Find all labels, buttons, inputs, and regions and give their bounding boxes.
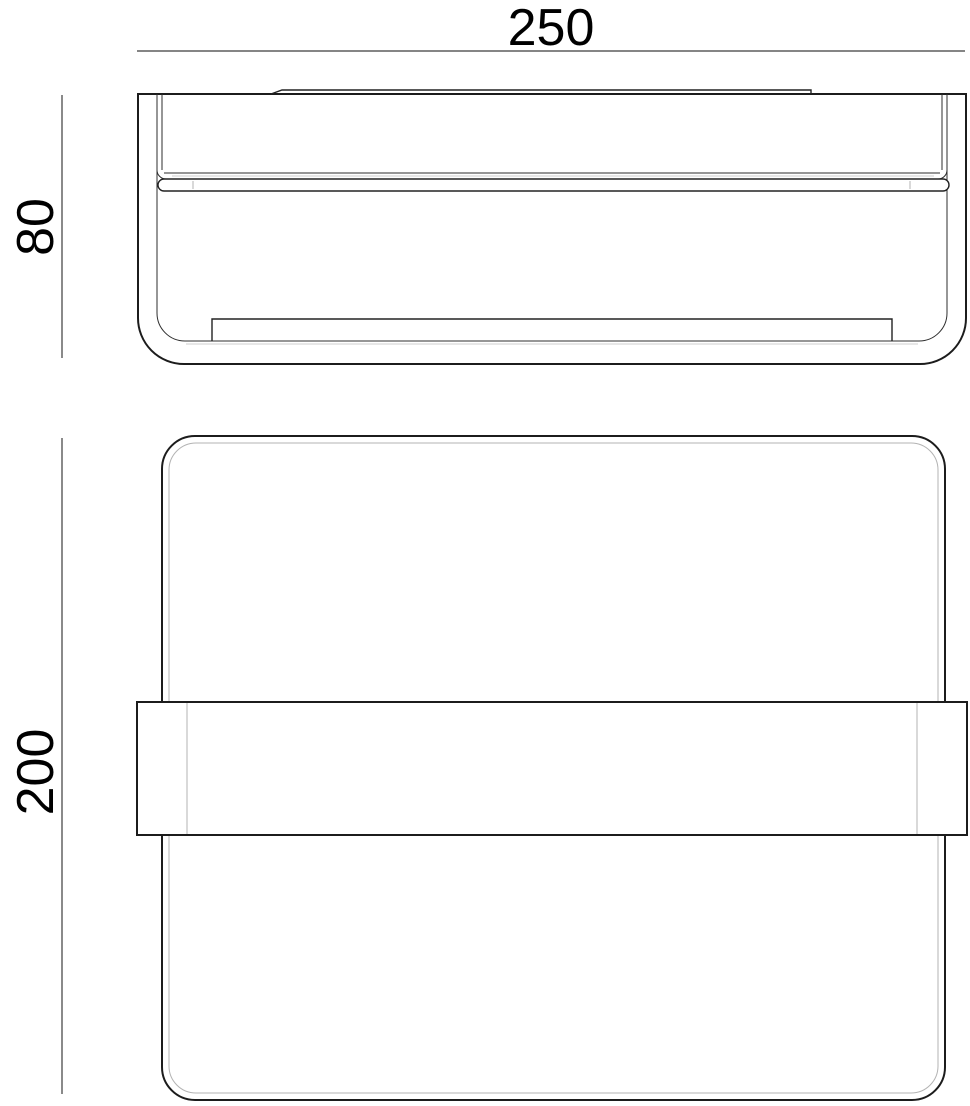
dimension-width: 250 xyxy=(137,0,965,57)
plan-view-mounting-band xyxy=(137,702,967,835)
front-view-cap-left xyxy=(157,170,166,179)
drawing-svg: 250 80 200 xyxy=(0,0,970,1106)
dimension-width-label: 250 xyxy=(508,0,595,57)
front-view-inner-wall xyxy=(157,94,947,341)
technical-drawing-canvas: 250 80 200 xyxy=(0,0,970,1106)
front-view-bar xyxy=(158,179,949,191)
dimension-depth-label: 200 xyxy=(7,729,65,816)
dimension-height: 80 xyxy=(7,95,65,358)
front-view-outer-body xyxy=(138,94,966,364)
front-view xyxy=(138,90,966,364)
plan-view xyxy=(137,436,967,1100)
dimension-depth: 200 xyxy=(7,438,65,1094)
front-view-cap-right xyxy=(938,170,947,179)
front-view-base-plate xyxy=(212,319,892,341)
dimension-height-label: 80 xyxy=(7,198,65,256)
